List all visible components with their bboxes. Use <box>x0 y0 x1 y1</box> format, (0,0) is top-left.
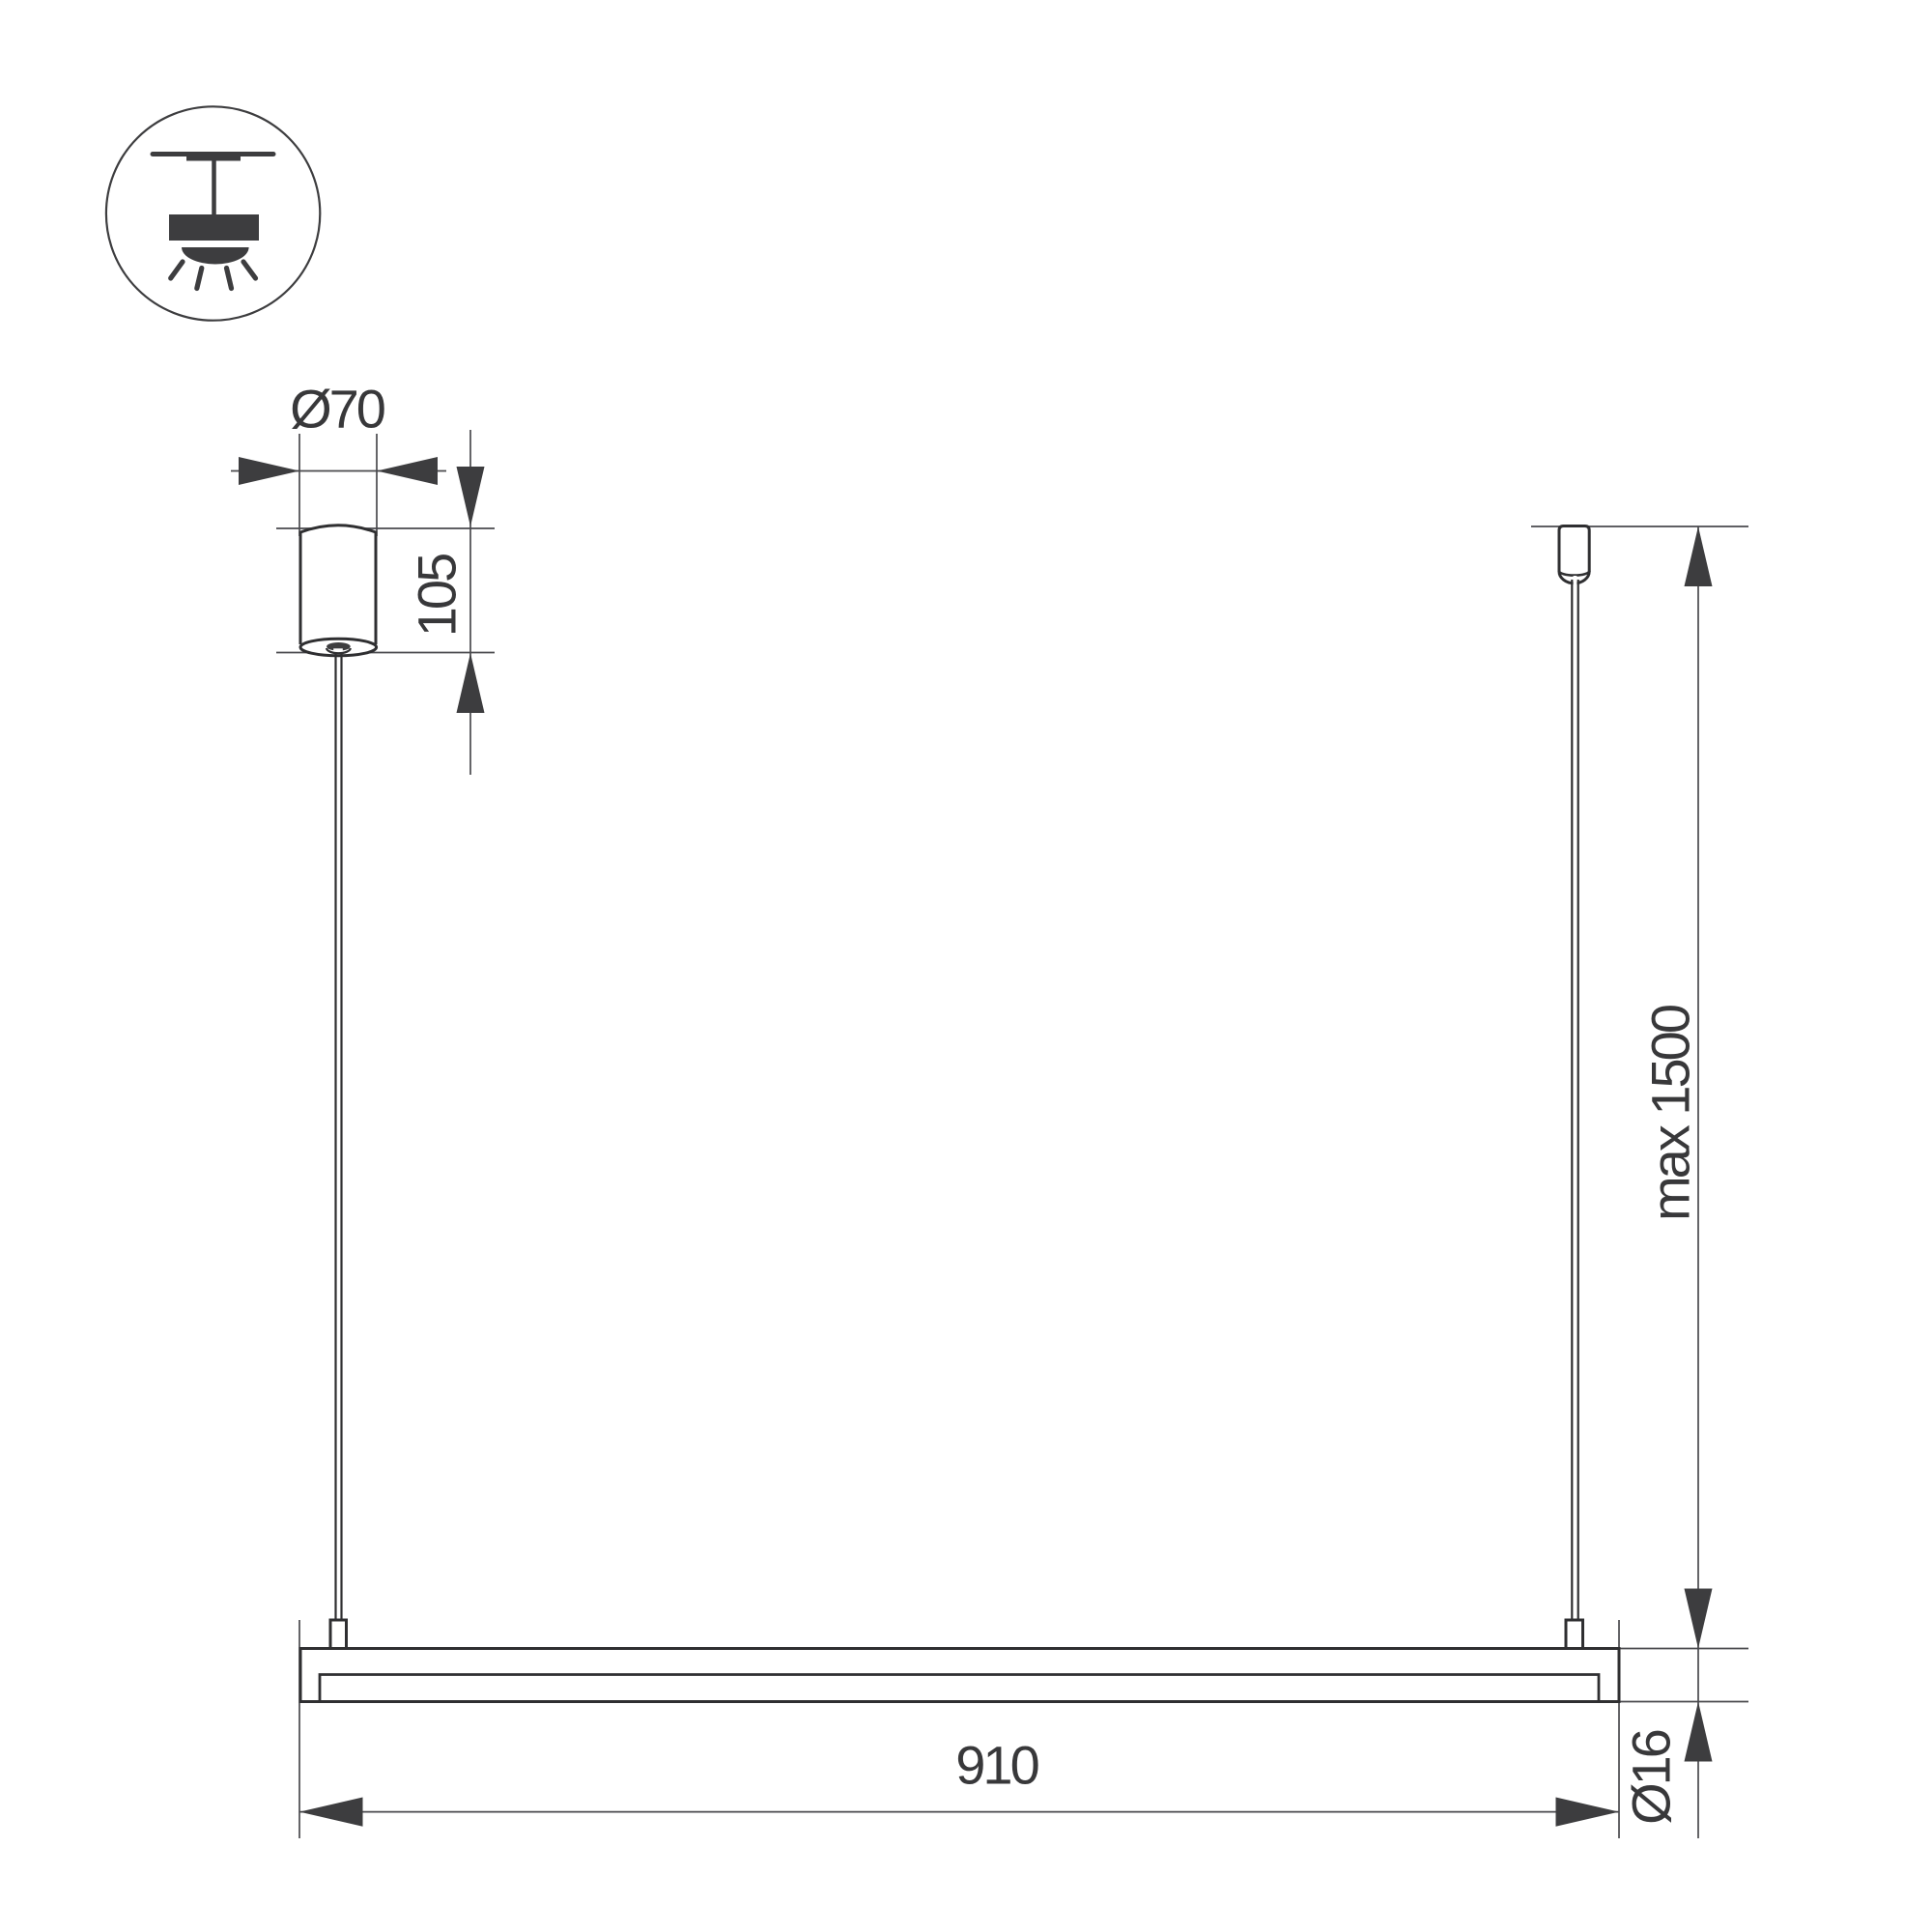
svg-text:910: 910 <box>955 1735 1037 1796</box>
svg-text:max 1500: max 1500 <box>1640 1006 1701 1221</box>
svg-text:105: 105 <box>407 554 468 637</box>
svg-text:Ø70: Ø70 <box>290 379 384 440</box>
svg-text:Ø16: Ø16 <box>1621 1730 1682 1825</box>
